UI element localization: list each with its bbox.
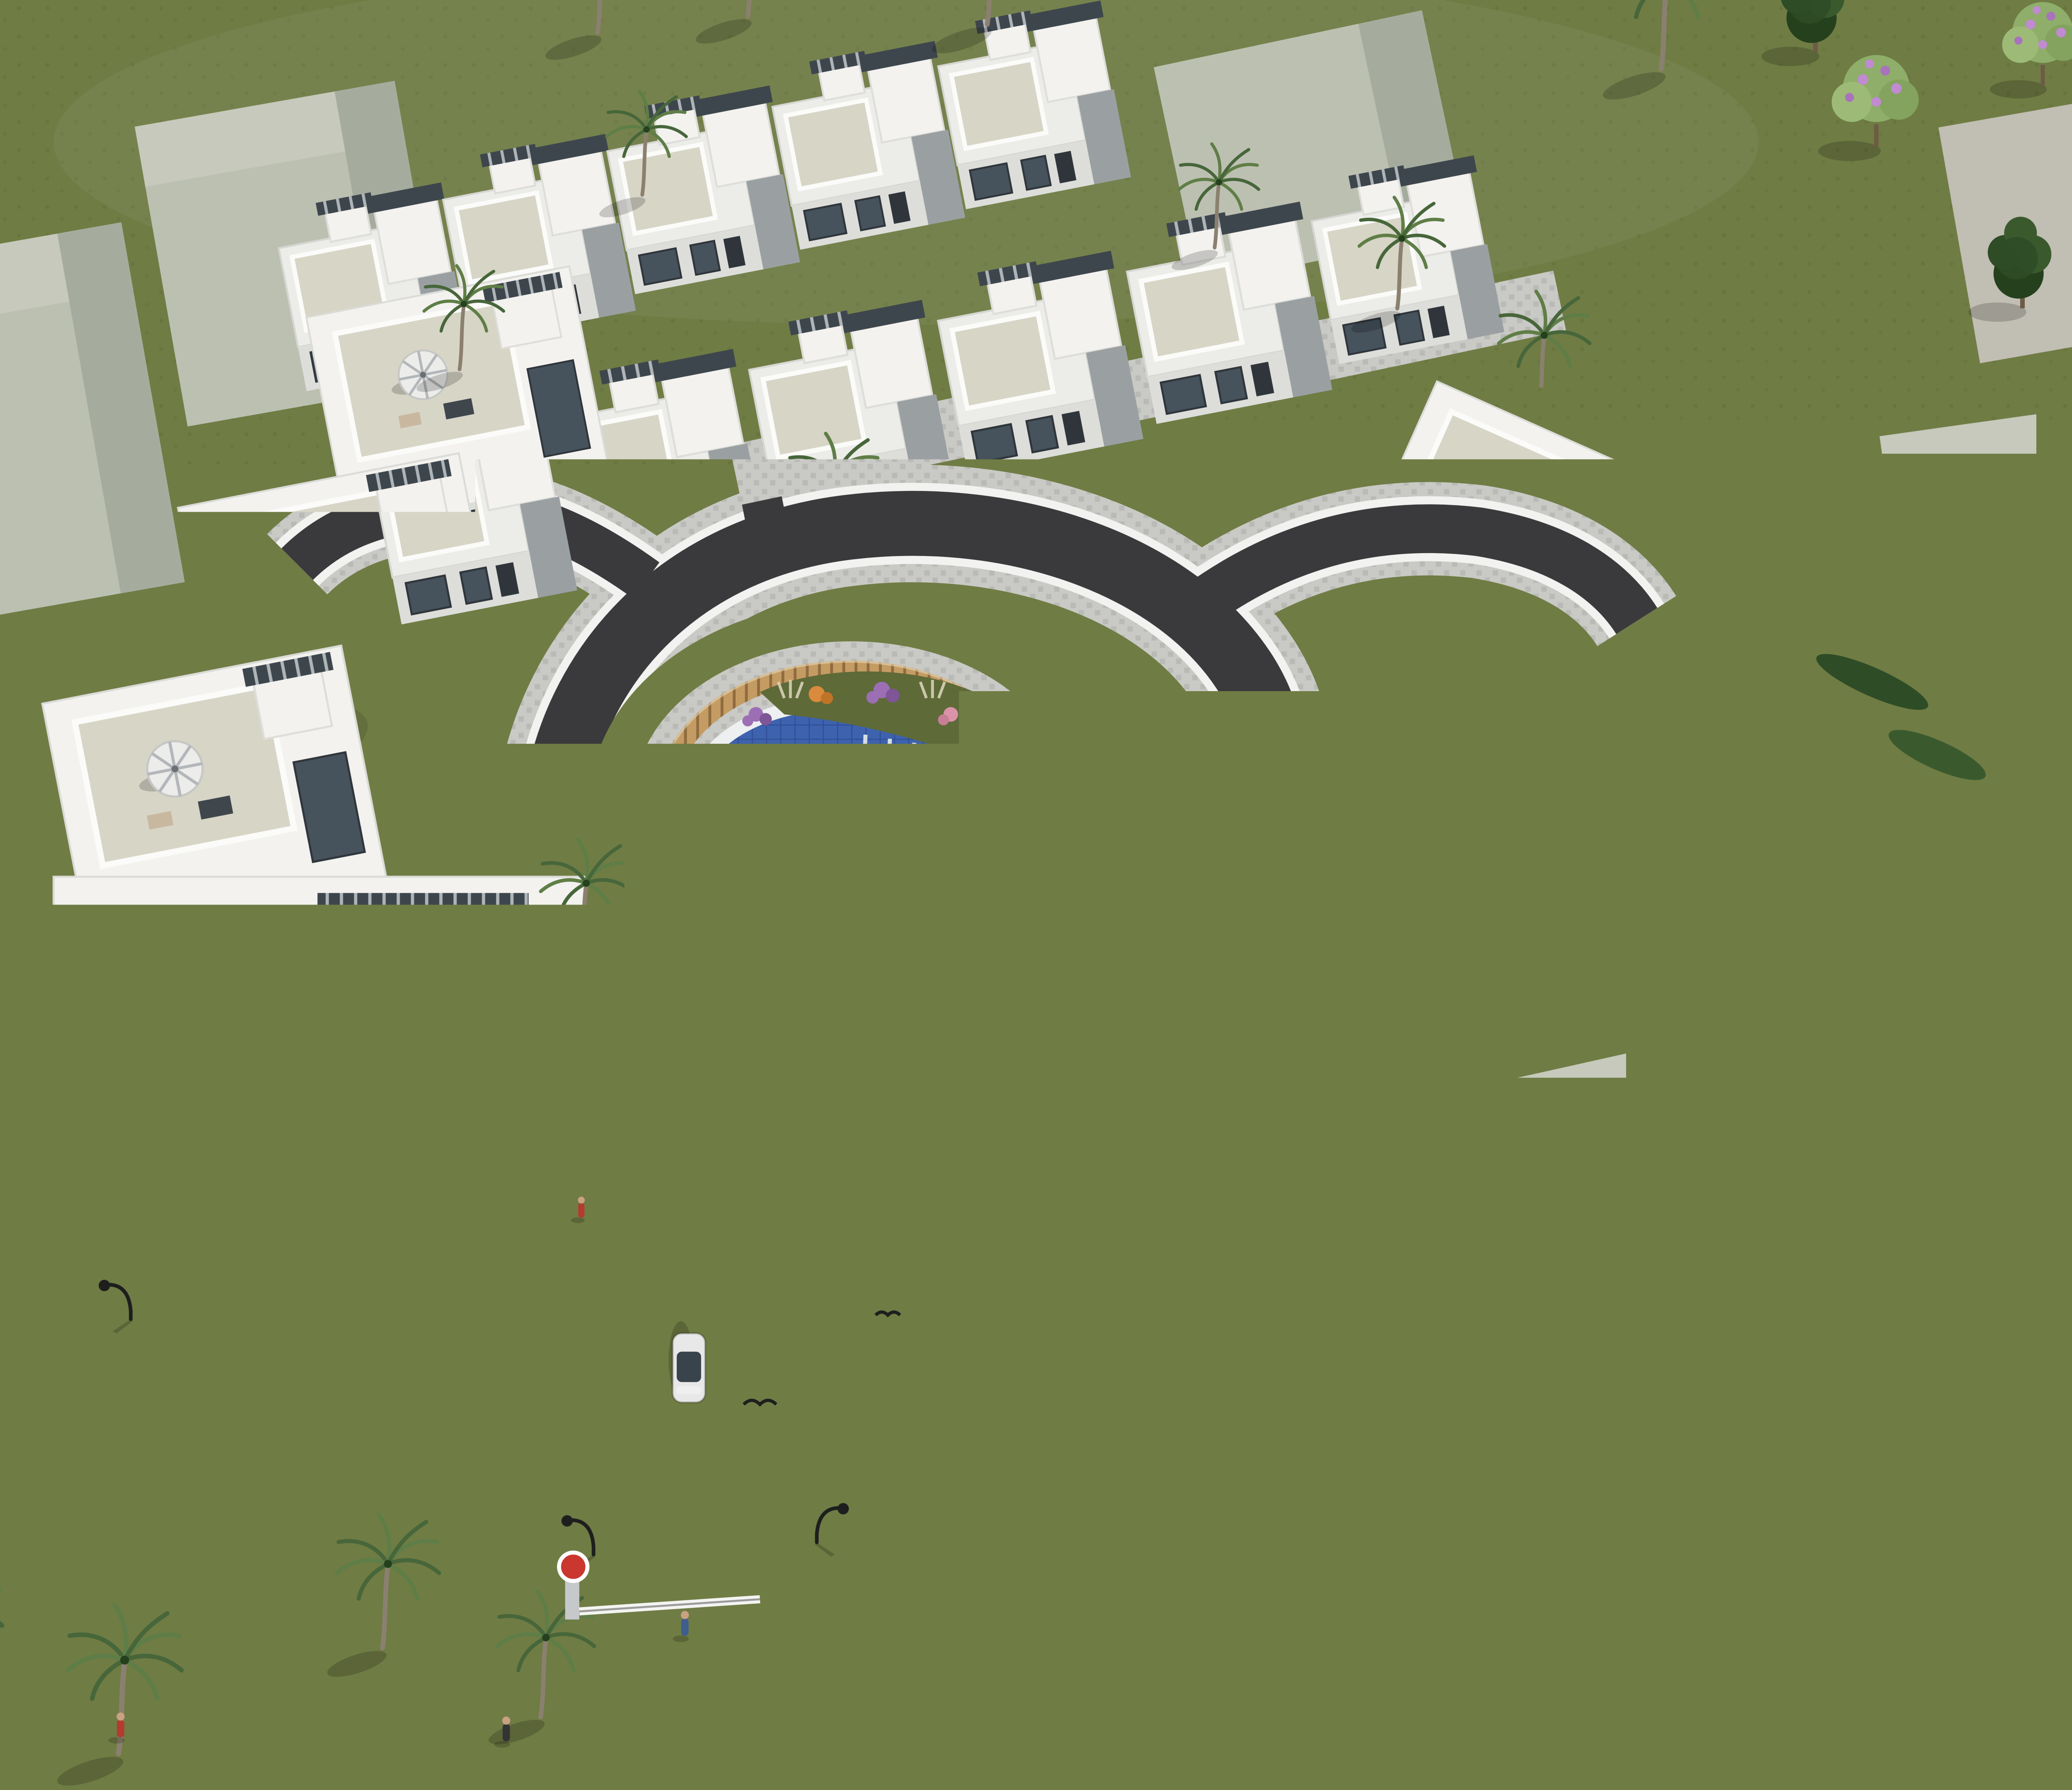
jacuzzi [378, 986, 435, 1025]
pergola-louvre [955, 905, 1215, 970]
pergola-louvre [317, 893, 528, 962]
white-sedan [668, 1321, 705, 1403]
slit-windows [841, 1319, 902, 1376]
aerial-render [0, 0, 2072, 1790]
south-villa-left [0, 877, 586, 1717]
barrier-sign [559, 1553, 588, 1581]
